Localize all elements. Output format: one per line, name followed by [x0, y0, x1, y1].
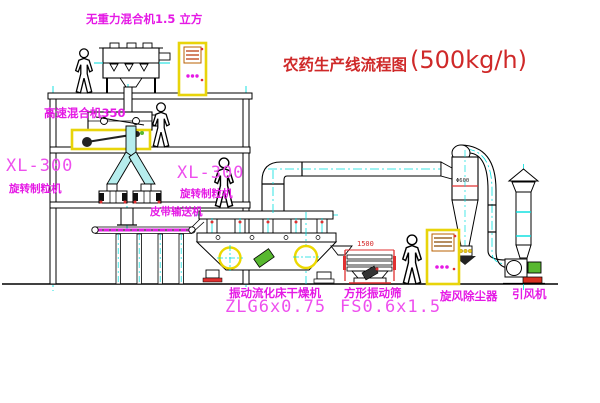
fluid-bed-dryer-drawing	[194, 211, 338, 290]
granulators-drawing	[99, 184, 161, 204]
label-granulator-right-model: XL-300	[177, 165, 244, 182]
label-gravity-free-mixer: 无重力混合机1.5 立方	[86, 14, 202, 26]
label-granulator-right-name: 旋转制粒机	[180, 189, 233, 200]
control-cabinet-upper	[179, 43, 206, 95]
diagram-title-capacity: (500kg/h)	[410, 46, 527, 74]
cyclone-drawing	[452, 145, 522, 268]
person-icon	[76, 49, 93, 93]
label-high-speed-mixer: 高速混合机350	[44, 108, 126, 120]
person-icon	[153, 103, 170, 147]
sieve-drawing	[331, 246, 396, 283]
exhaust-duct-drawing	[262, 162, 452, 213]
label-dryer-model: ZLG6x0.75	[225, 299, 326, 316]
label-granulator-left-name: 旋转制粒机	[9, 184, 62, 195]
label-cyclone: 旋风除尘器	[440, 291, 498, 303]
cad-flow-diagram: 农药生产线流程图 (500kg/h) 无重力混合机1.5 立方 高速混合机350…	[0, 0, 600, 403]
label-fan: 引风机	[512, 289, 547, 301]
label-belt-conveyor: 皮带输送机	[150, 207, 203, 218]
person-icon	[403, 235, 421, 284]
belt-conveyor-drawing	[92, 218, 204, 284]
dimension-cyclone: Φ600	[456, 179, 469, 185]
label-sieve-model: FS0.6x1.5	[340, 299, 441, 316]
diagram-title-text: 农药生产线流程图	[283, 46, 407, 75]
control-cabinet-lower	[427, 230, 459, 284]
gravity-free-mixer-drawing	[94, 43, 170, 93]
discharge-duct	[117, 206, 137, 230]
diagram-title: 农药生产线流程图 (500kg/h)	[283, 46, 527, 75]
dimension-1500: 1500	[357, 241, 374, 248]
label-granulator-left-model: XL-300	[6, 158, 73, 175]
induced-fan-drawing	[503, 259, 545, 284]
